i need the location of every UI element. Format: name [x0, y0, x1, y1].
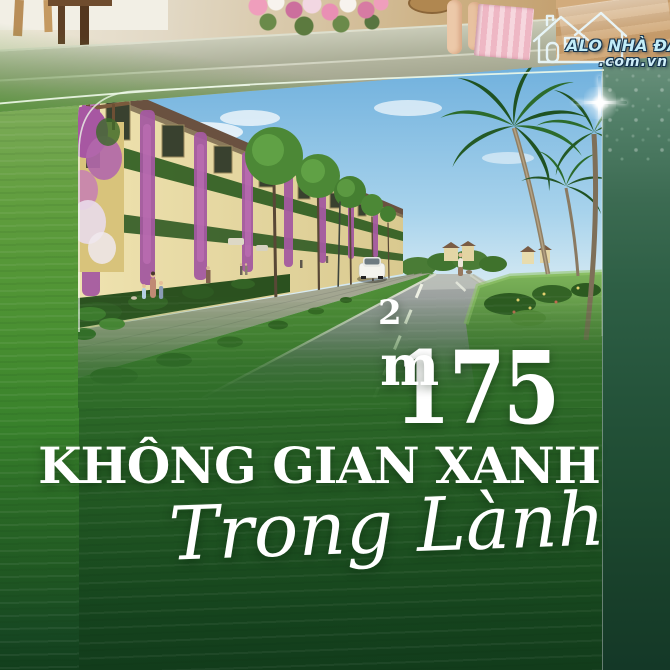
real-estate-poster: ALO NHÀ ĐẤT .com.vn 175 m 2 KHÔNG GIAN X… — [0, 0, 670, 670]
brand-domain: .com.vn — [599, 54, 668, 70]
brand-name: ALO NHÀ ĐẤT — [566, 36, 670, 55]
green-left-strip — [0, 56, 79, 670]
sparkle-glow — [584, 87, 616, 119]
green-right-panel — [602, 50, 670, 670]
brand-logo: ALO NHÀ ĐẤT .com.vn — [532, 8, 670, 74]
four-point-sparkle-icon — [573, 76, 627, 130]
photo-bottom-fade — [78, 296, 602, 408]
